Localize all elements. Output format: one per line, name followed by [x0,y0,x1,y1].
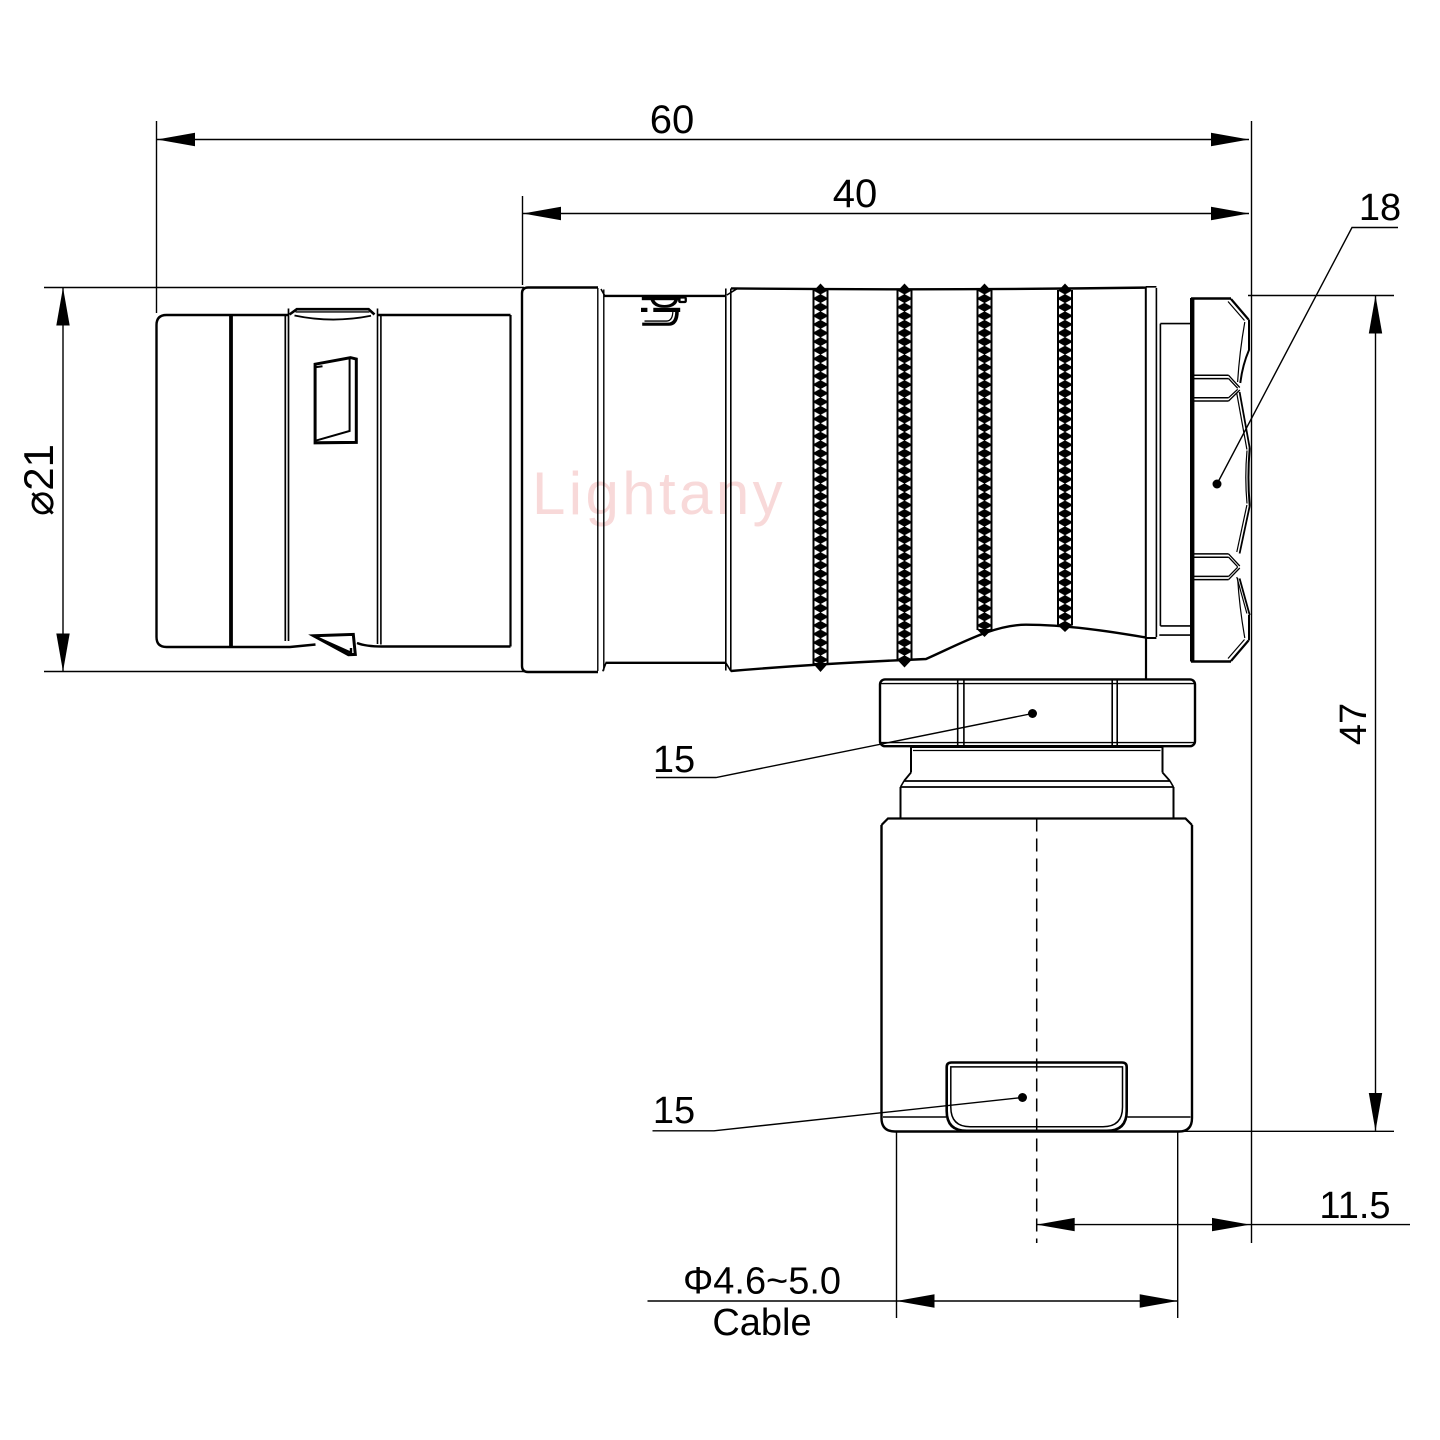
svg-text:15: 15 [653,1090,695,1132]
svg-text:Φ4.6~5.0: Φ4.6~5.0 [683,1261,841,1303]
svg-text:40: 40 [833,172,878,216]
svg-text:Cable: Cable [712,1302,811,1344]
svg-text:Lightany: Lightany [532,460,786,527]
svg-text:⌀21: ⌀21 [15,444,62,516]
svg-text:60: 60 [650,98,695,142]
svg-text:18: 18 [1359,187,1401,229]
svg-text:11.5: 11.5 [1319,1185,1390,1227]
svg-text:47: 47 [1333,703,1375,745]
svg-text:15: 15 [653,739,695,781]
